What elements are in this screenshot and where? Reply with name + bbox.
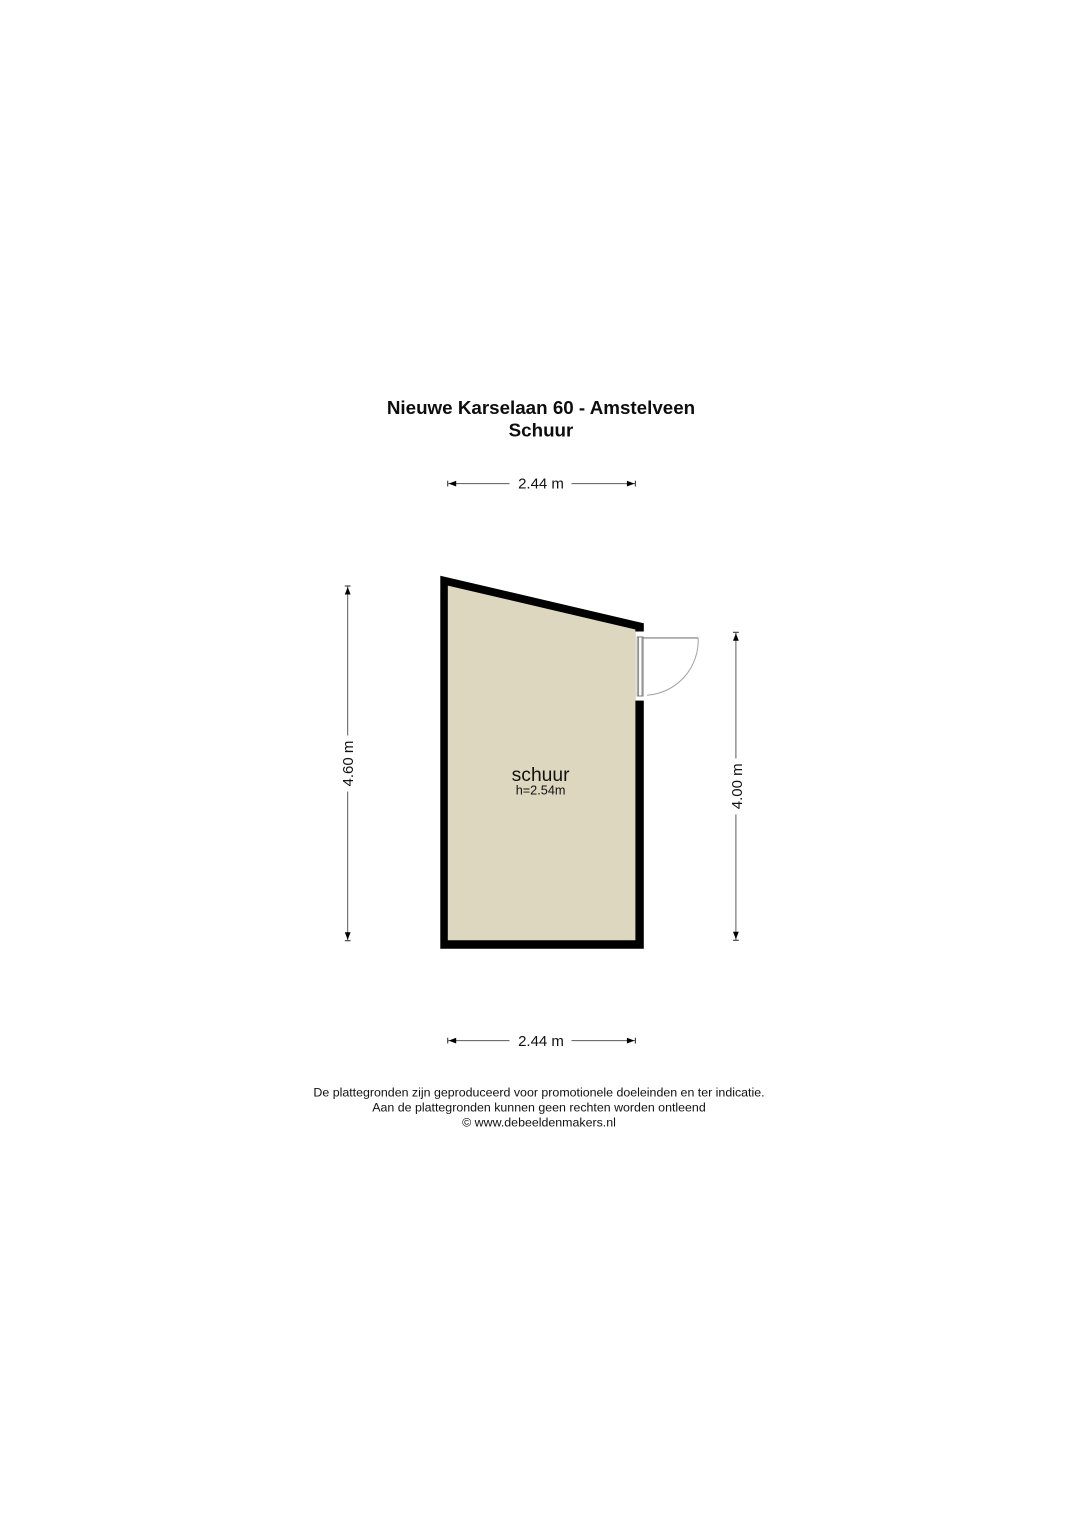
svg-text:4.00 m: 4.00 m (729, 763, 746, 809)
svg-text:2.44 m: 2.44 m (518, 476, 564, 493)
svg-text:De plattegronden zijn geproduc: De plattegronden zijn geproduceerd voor … (313, 1086, 764, 1100)
svg-text:© www.debeeldenmakers.nl: © www.debeeldenmakers.nl (462, 1115, 616, 1129)
svg-text:Aan de plattegronden kunnen ge: Aan de plattegronden kunnen geen rechten… (372, 1100, 706, 1114)
svg-text:h=2.54m: h=2.54m (516, 784, 566, 798)
svg-text:4.60 m: 4.60 m (340, 741, 357, 787)
svg-text:Schuur: Schuur (509, 420, 574, 441)
svg-text:2.44 m: 2.44 m (518, 1033, 564, 1050)
svg-text:Nieuwe Karselaan 60 - Amstelve: Nieuwe Karselaan 60 - Amstelveen (387, 397, 695, 418)
